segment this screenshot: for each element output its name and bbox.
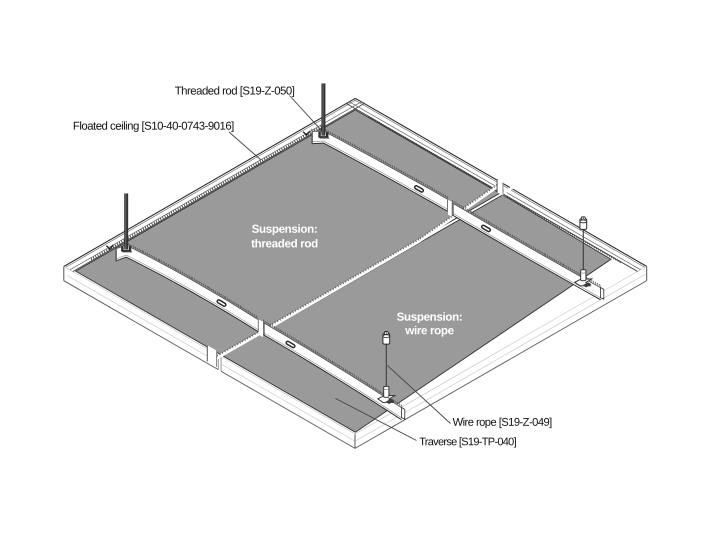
svg-text:Threaded rod [S19-Z-050]: Threaded rod [S19-Z-050] — [175, 86, 295, 98]
svg-text:Suspension:: Suspension: — [252, 223, 318, 236]
svg-text:Traverse [S19-TP-040]: Traverse [S19-TP-040] — [419, 436, 516, 448]
svg-text:Wire rope [S19-Z-049]: Wire rope [S19-Z-049] — [453, 417, 553, 429]
svg-text:wire rope: wire rope — [404, 324, 454, 337]
svg-text:Floated ceiling [S10-40-0743-9: Floated ceiling [S10-40-0743-9016] — [73, 121, 234, 133]
svg-text:Suspension:: Suspension: — [397, 311, 463, 324]
svg-text:threaded rod: threaded rod — [251, 237, 318, 250]
